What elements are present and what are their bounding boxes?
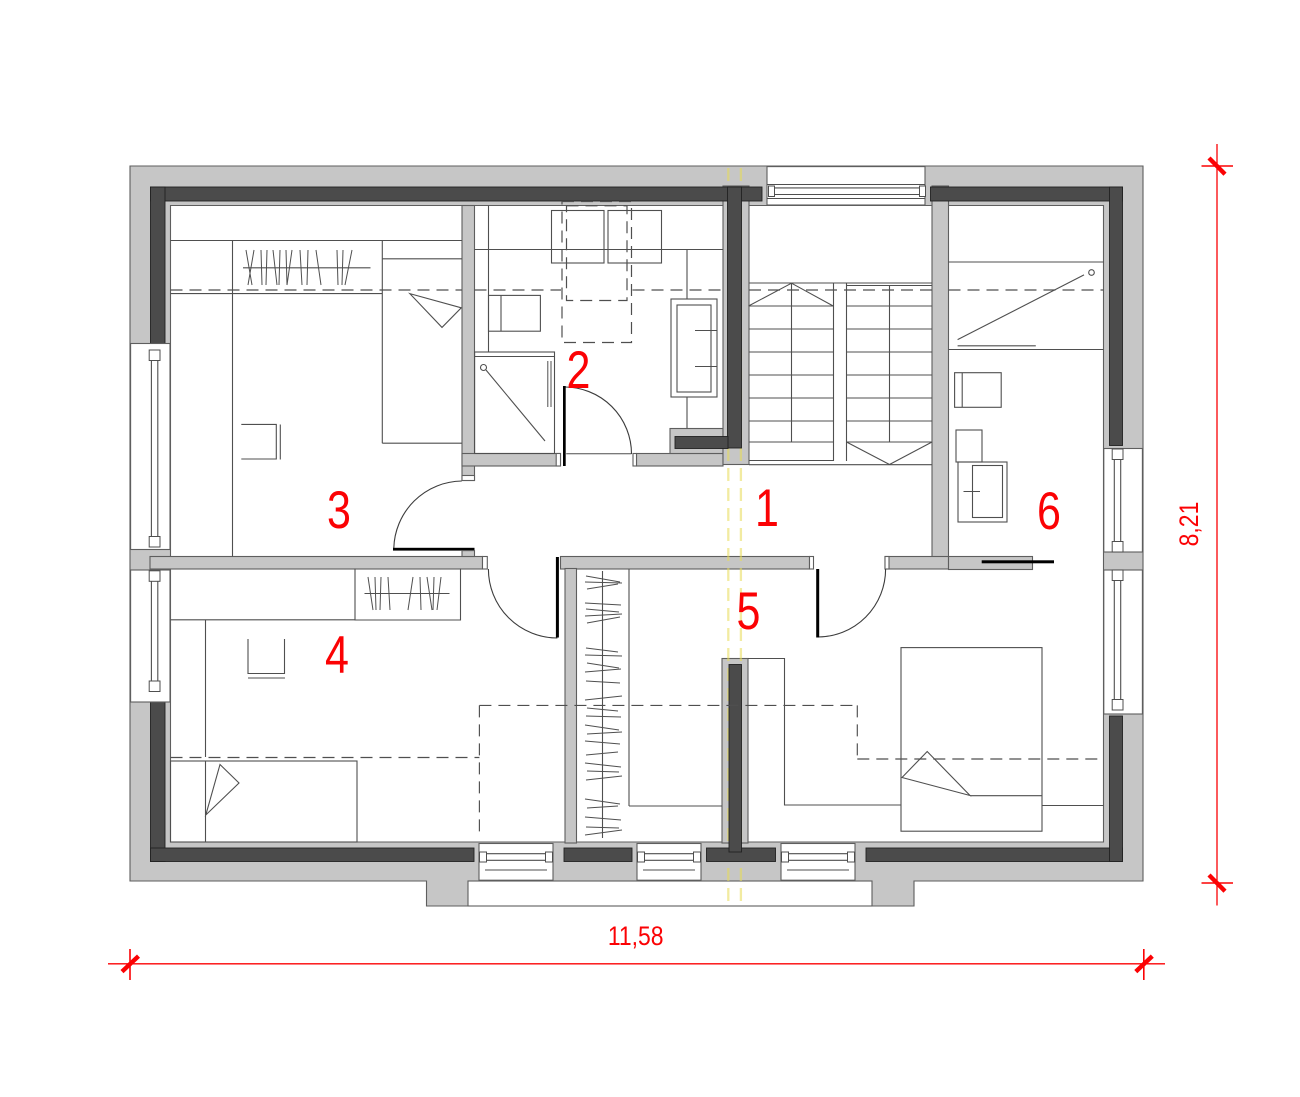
svg-text:3: 3 [327,482,351,540]
svg-text:6: 6 [1037,483,1061,541]
svg-text:2: 2 [567,342,591,400]
svg-text:5: 5 [737,583,761,641]
svg-text:8,21: 8,21 [1174,502,1204,547]
svg-text:4: 4 [325,627,349,685]
svg-text:1: 1 [755,480,779,538]
svg-text:11,58: 11,58 [608,921,664,951]
